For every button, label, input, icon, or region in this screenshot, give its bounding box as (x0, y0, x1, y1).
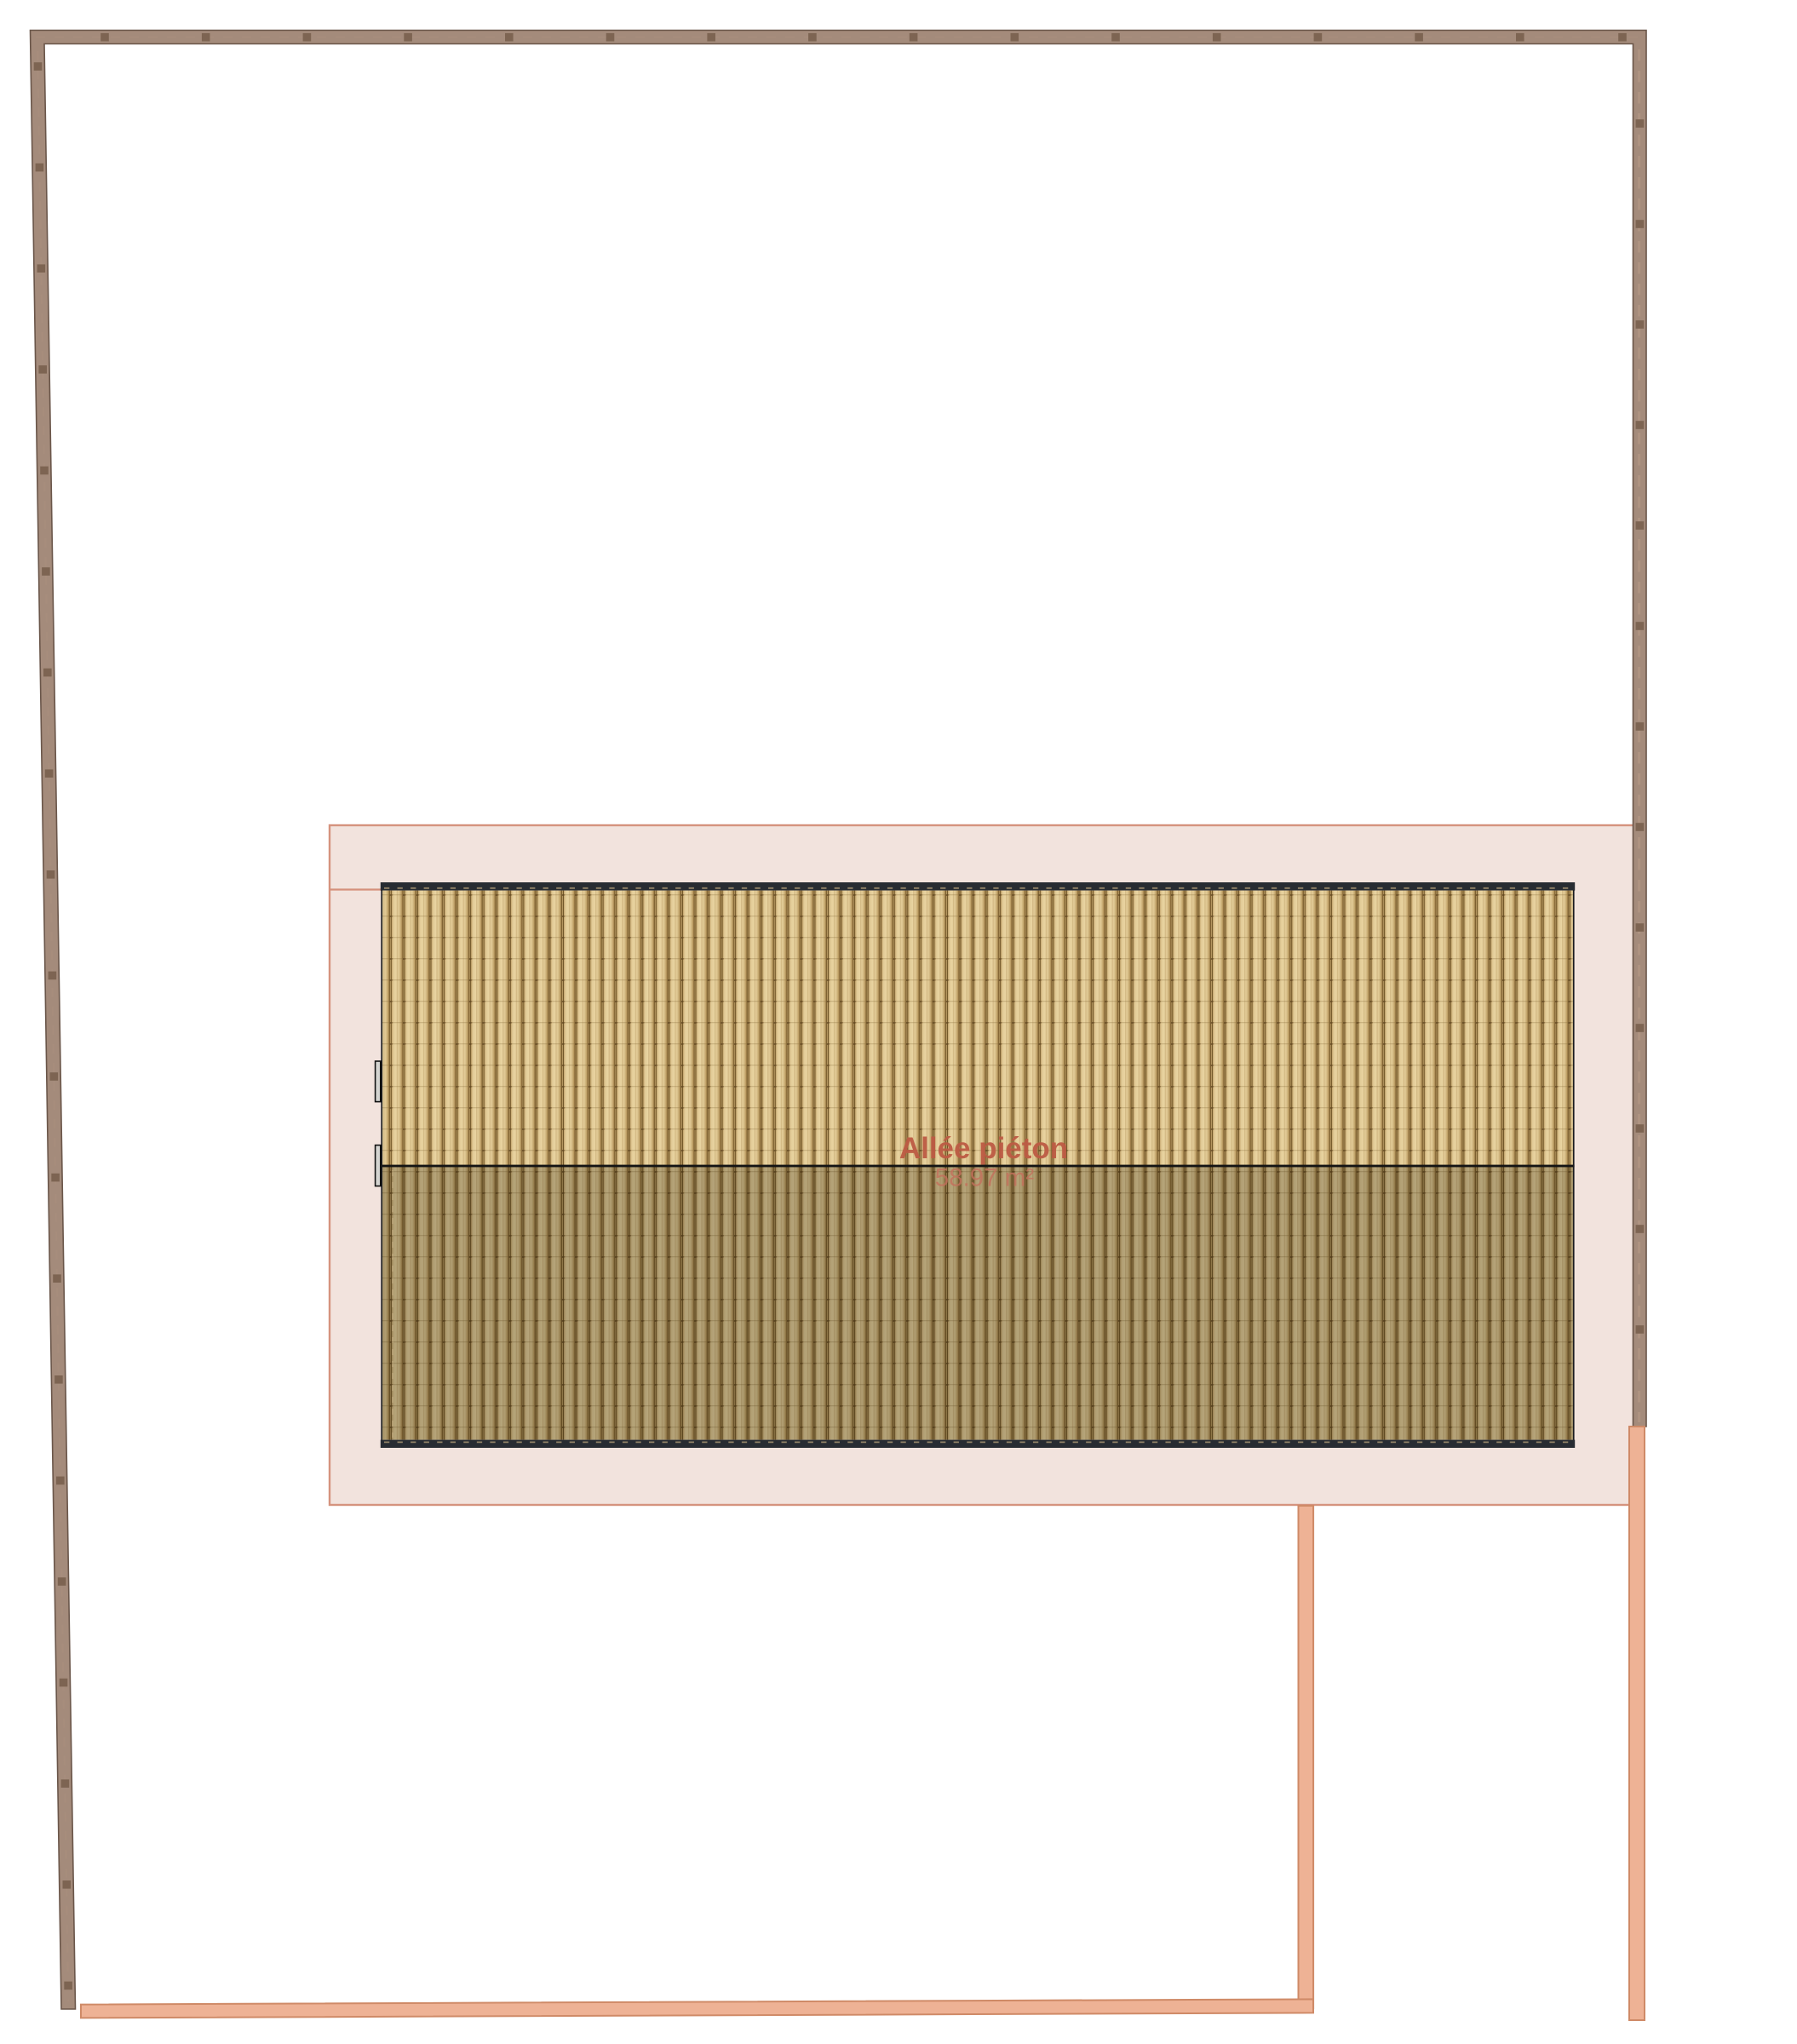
svg-text:58.97 m²: 58.97 m² (935, 1164, 1035, 1192)
svg-text:Allée piéton: Allée piéton (899, 1132, 1068, 1165)
